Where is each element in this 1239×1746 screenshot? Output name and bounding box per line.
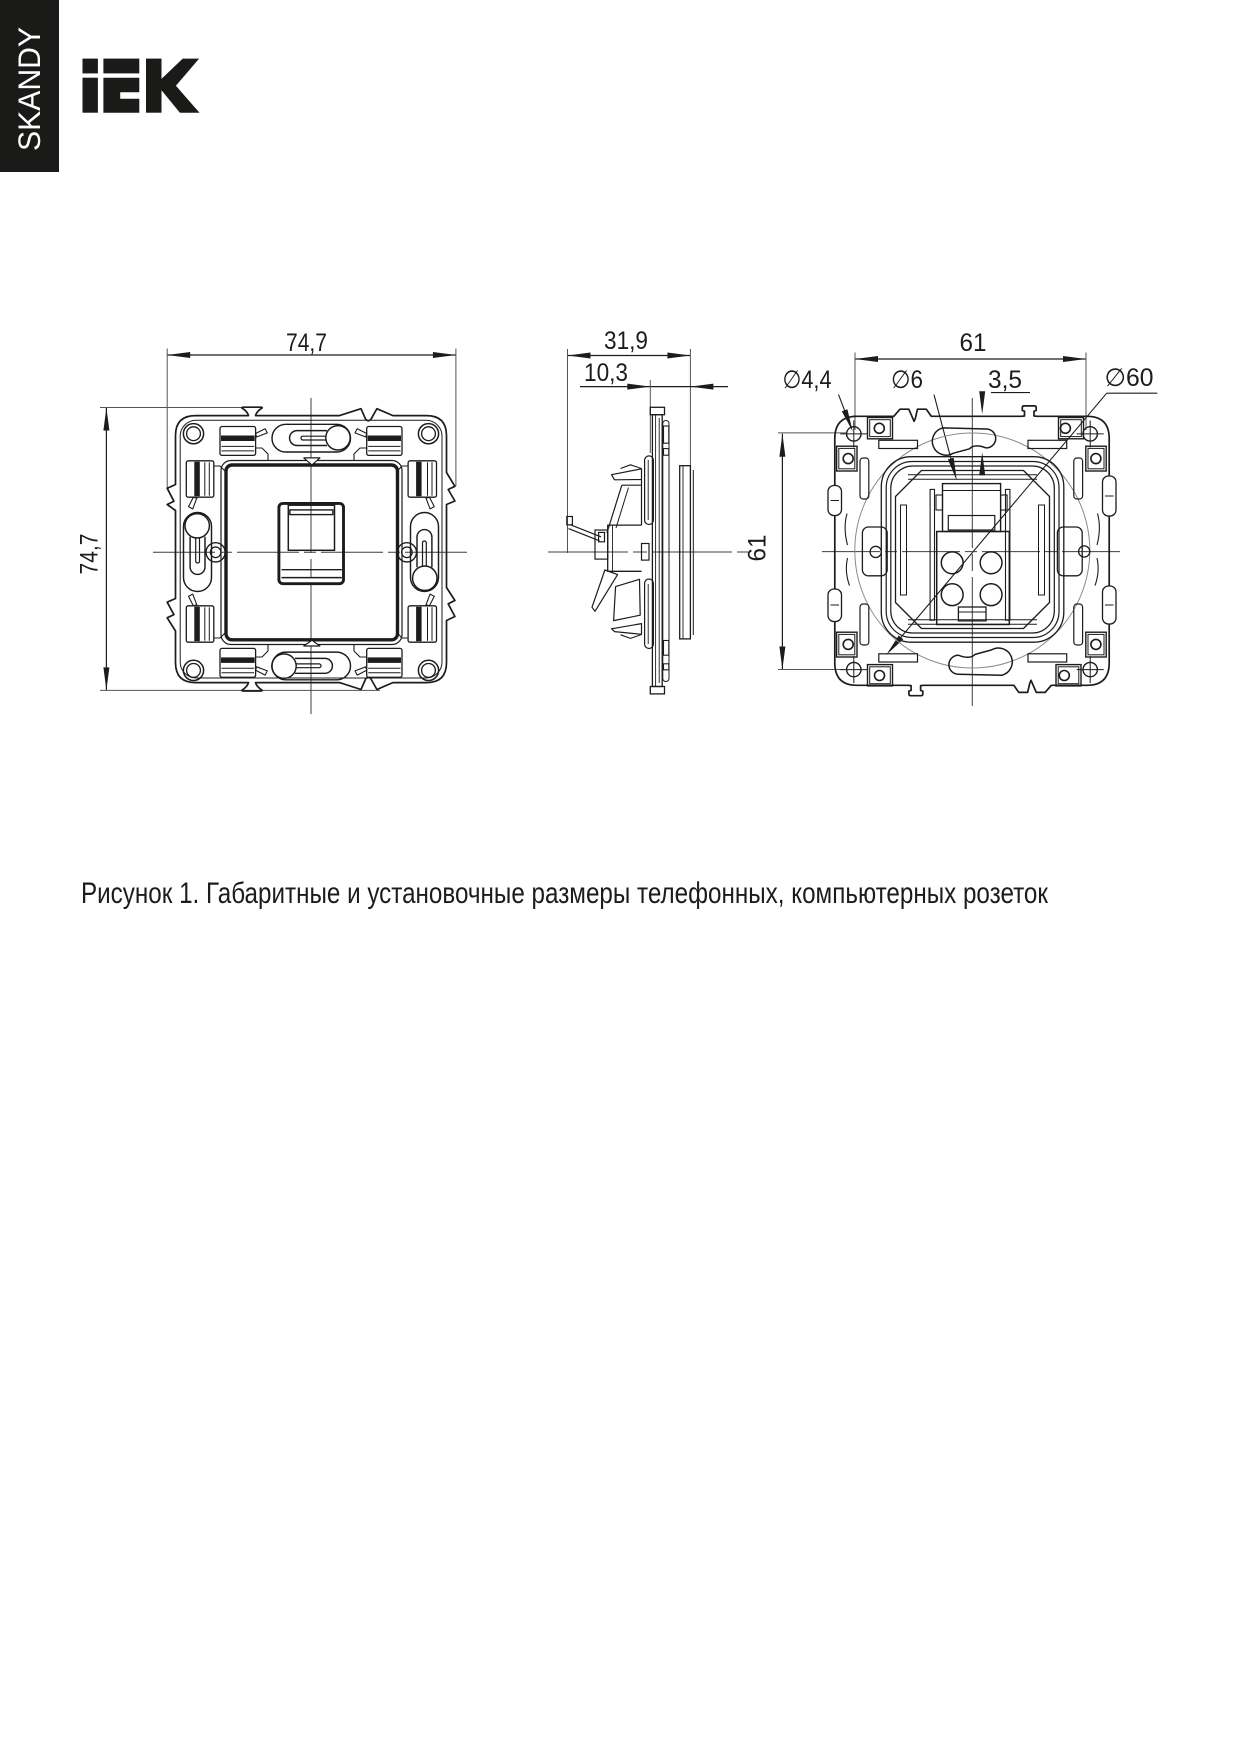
svg-text:Рисунок 1. Габаритные и устано: Рисунок 1. Габаритные и установочные раз… xyxy=(81,877,1049,910)
